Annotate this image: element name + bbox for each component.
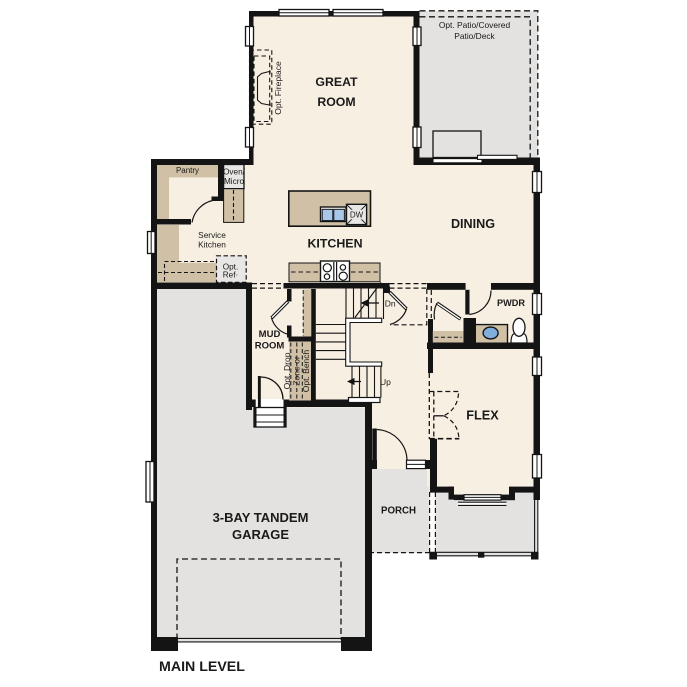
svg-text:DW: DW bbox=[350, 211, 364, 220]
svg-text:FLEX: FLEX bbox=[466, 409, 499, 423]
svg-text:Ref·: Ref· bbox=[223, 270, 238, 279]
svg-text:PORCH: PORCH bbox=[381, 505, 416, 516]
svg-text:Micro: Micro bbox=[224, 177, 244, 186]
svg-text:Opt. Fireplace: Opt. Fireplace bbox=[273, 61, 283, 115]
svg-text:DINING: DINING bbox=[451, 217, 495, 231]
svg-text:Opt. Bench: Opt. Bench bbox=[301, 349, 311, 392]
svg-text:KITCHEN: KITCHEN bbox=[307, 237, 362, 251]
svg-text:Dn: Dn bbox=[385, 299, 396, 309]
svg-text:ROOM: ROOM bbox=[255, 340, 285, 351]
svg-text:Kitchen: Kitchen bbox=[198, 239, 226, 249]
svg-text:ROOM: ROOM bbox=[317, 95, 355, 109]
svg-text:GARAGE: GARAGE bbox=[232, 527, 289, 542]
svg-text:Up: Up bbox=[380, 377, 391, 387]
svg-text:Pantry: Pantry bbox=[176, 166, 199, 175]
svg-text:MAIN LEVEL: MAIN LEVEL bbox=[159, 659, 245, 675]
svg-text:Opt. Patio/Covered: Opt. Patio/Covered bbox=[439, 20, 511, 30]
svg-text:Opt. Drop: Opt. Drop bbox=[282, 352, 292, 389]
svg-text:Patio/Deck: Patio/Deck bbox=[454, 31, 495, 41]
svg-text:GREAT: GREAT bbox=[315, 75, 358, 89]
svg-text:Service: Service bbox=[198, 230, 226, 240]
svg-text:Oven/: Oven/ bbox=[223, 167, 246, 176]
svg-text:MUD: MUD bbox=[259, 329, 281, 340]
svg-text:PWDR: PWDR bbox=[497, 298, 525, 308]
svg-text:Zone or: Zone or bbox=[292, 356, 302, 385]
svg-text:3-BAY TANDEM: 3-BAY TANDEM bbox=[213, 510, 309, 525]
